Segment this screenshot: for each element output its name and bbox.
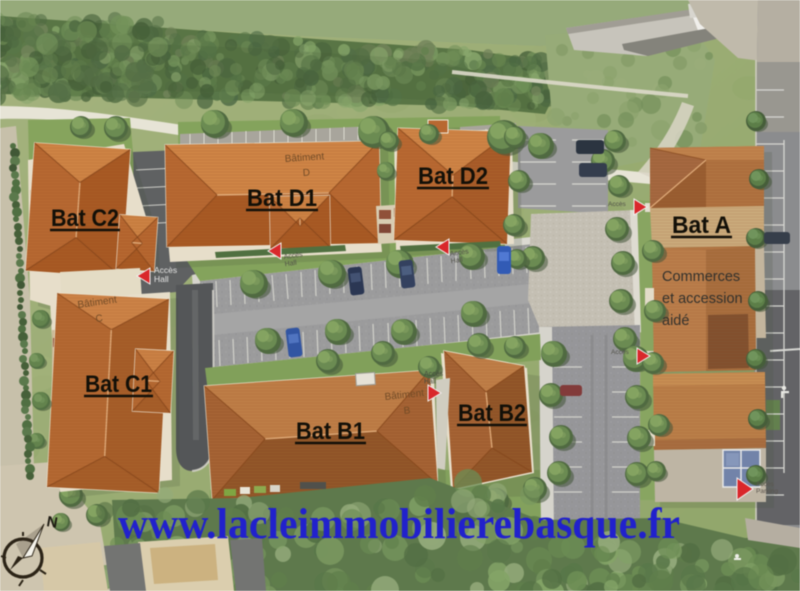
- svg-text:Bat D2: Bat D2: [418, 163, 488, 190]
- svg-text:Bat A: Bat A: [672, 212, 731, 239]
- svg-text:Bat C2: Bat C2: [51, 205, 119, 232]
- svg-text:Bat C1: Bat C1: [85, 371, 152, 398]
- svg-text:www.lacleimmobilierebasque.fr: www.lacleimmobilierebasque.fr: [118, 501, 680, 548]
- svg-text:Bat D1: Bat D1: [247, 185, 317, 212]
- svg-text:Commerces: Commerces: [662, 269, 740, 285]
- svg-text:aidé: aidé: [662, 313, 689, 329]
- svg-text:et accession: et accession: [662, 291, 743, 307]
- svg-text:Bat B2: Bat B2: [458, 400, 526, 427]
- svg-text:Bat B1: Bat B1: [296, 418, 365, 445]
